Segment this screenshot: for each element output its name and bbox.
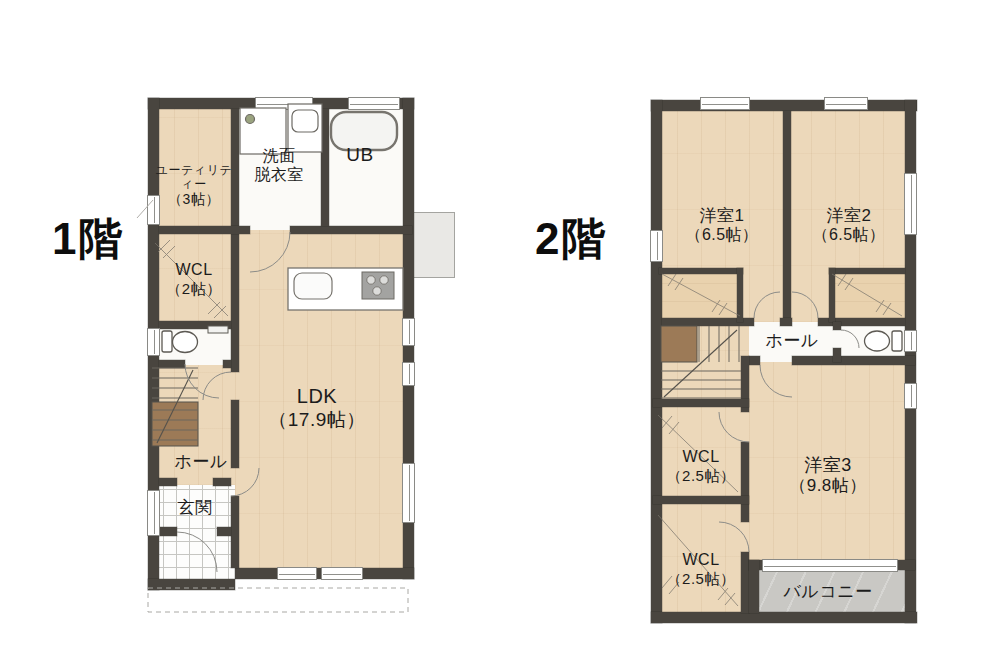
room-label-wcl-1f: WCL （2帖）: [150, 261, 238, 298]
room-name: 洗面: [235, 147, 323, 166]
room-label-hall-1f: ホール: [161, 452, 241, 472]
room-label-senmen: 洗面 脱衣室: [235, 147, 323, 185]
kitchen-sink-icon: [294, 273, 332, 299]
room-size: （6.5帖）: [789, 226, 909, 245]
room-name: WCL: [655, 448, 747, 467]
kitchen-counter: [288, 268, 403, 310]
room-name: 洋室3: [758, 455, 898, 476]
room-label-wcl-upper: WCL （2.5帖）: [655, 448, 747, 485]
room-name: WCL: [150, 261, 238, 280]
room-name: 脱衣室: [235, 166, 323, 185]
room-label-yoshitsu1: 洋室1 （6.5帖）: [662, 206, 782, 245]
toilet-icon: [162, 326, 228, 353]
room-label-yoshitsu2: 洋室2 （6.5帖）: [789, 206, 909, 245]
room-size: （2帖）: [150, 280, 238, 298]
room-label-utility: ユーティリティー （3帖）: [150, 163, 238, 208]
room-size: （17.9帖）: [247, 409, 387, 431]
room-name: ユーティリティー: [150, 163, 238, 191]
room-label-wcl-lower: WCL （2.5帖）: [655, 551, 747, 588]
room-label-hall-2f: ホール: [752, 331, 832, 351]
room-label-ldk: LDK （17.9帖）: [247, 385, 387, 431]
room-name: UB: [325, 144, 395, 166]
porch-outline: [148, 588, 408, 612]
room-label-yoshitsu3: 洋室3 （9.8帖）: [758, 455, 898, 496]
vanity-sink-icon: [288, 104, 322, 152]
room-size: （2.5帖）: [655, 467, 747, 485]
room-name: ホール: [752, 331, 832, 351]
room-name: 玄関: [155, 498, 235, 518]
room-label-genkan: 玄関: [155, 498, 235, 518]
room-name: 洋室1: [662, 206, 782, 226]
room-size: （3帖）: [150, 191, 238, 208]
room-label-balcony: バルコニー: [760, 582, 896, 602]
room-name: 洋室2: [789, 206, 909, 226]
room-name: LDK: [247, 385, 387, 409]
toilet-icon: [865, 331, 903, 351]
stairs-icon: [661, 326, 741, 398]
stove-icon: [362, 272, 394, 299]
room-name: ホール: [161, 452, 241, 472]
floor1-title: 1階: [52, 210, 124, 269]
floor2-title: 2階: [535, 210, 607, 269]
room-name: バルコニー: [760, 582, 896, 602]
room-label-ub: UB: [325, 144, 395, 166]
stairs-icon: [152, 368, 198, 446]
floor2-fixtures: [645, 95, 930, 625]
room-size: （9.8帖）: [758, 476, 898, 496]
room-size: （6.5帖）: [662, 226, 782, 245]
room-name: WCL: [655, 551, 747, 570]
room-size: （2.5帖）: [655, 570, 747, 588]
